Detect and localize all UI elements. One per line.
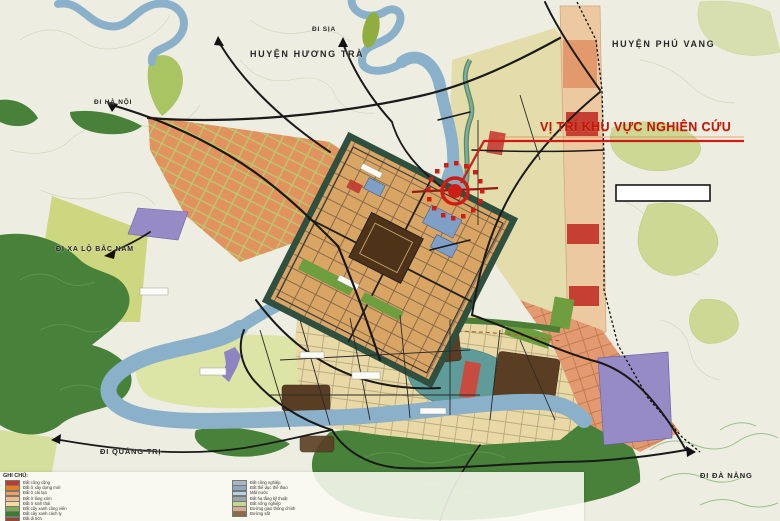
legend-column-2: Đất công nghiệp Đất thể dục thể thao Mặt… xyxy=(232,481,295,516)
legend-swatch xyxy=(232,511,247,517)
label-di-sia: ĐI SỊA xyxy=(312,26,336,33)
legend-label: Đất ở cải tạo xyxy=(23,491,47,495)
purple-area-northwest xyxy=(128,208,188,240)
legend-item: Đường sắt xyxy=(232,512,295,516)
east-strip xyxy=(560,6,606,336)
legend-swatch xyxy=(5,517,20,521)
label-huyen-phu-vang: HUYỆN PHÚ VANG xyxy=(612,39,715,49)
legend-item: Đất di tích xyxy=(5,517,67,521)
label-di-da-nang: ĐI ĐÀ NẴNG xyxy=(700,471,753,480)
marker-center xyxy=(448,184,462,198)
legend-label: Đất di tích xyxy=(23,517,42,521)
legend-column-1: Đất công cộng Đất ở xây dựng mới Đất ở c… xyxy=(5,481,67,521)
legend-panel: GHI CHÚ: Đất công cộng Đất ở xây dựng mớ… xyxy=(0,472,584,521)
legend-label: Đường sắt xyxy=(250,512,270,516)
legend-label: Mặt nước xyxy=(250,491,268,495)
label-study-area: VỊ TRÍ KHU VỰC NGHIÊN CỨU xyxy=(540,120,731,134)
label-di-quang-tri: ĐI QUẢNG TRỊ xyxy=(100,447,161,456)
planning-map: ĐI SỊA HUYỆN HƯƠNG TRÀ ĐI HÀ NỘI HUYỆN P… xyxy=(0,0,780,521)
legend-title: GHI CHÚ: xyxy=(3,473,28,479)
label-huyen-huong-tra: HUYỆN HƯƠNG TRÀ xyxy=(250,49,364,59)
map-canvas xyxy=(0,0,780,521)
callout-box xyxy=(616,185,710,201)
label-di-ha-noi: ĐI HÀ NỘI xyxy=(94,99,132,106)
label-di-xa-lo-bac-nam: ĐI XA LỘ BẮC NAM xyxy=(56,246,134,253)
